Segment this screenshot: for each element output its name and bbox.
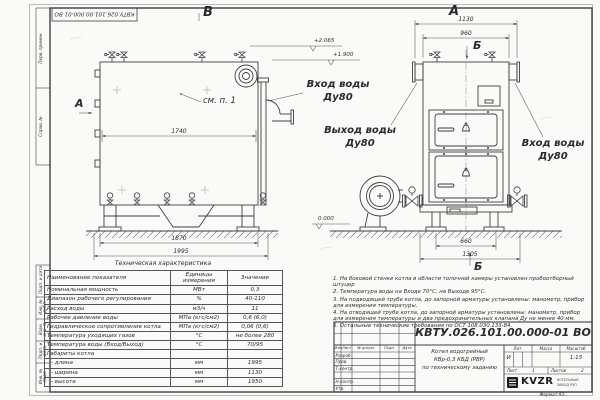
ground-hatch xyxy=(86,231,562,238)
inlet-valve xyxy=(508,187,528,207)
stamp-title-line2: КВр-0,3 КБД (РВР) xyxy=(434,358,485,363)
see-note-label: см. п. 1 xyxy=(203,97,236,106)
inlet-elbow xyxy=(266,100,280,114)
elevation-top: +2.065 xyxy=(314,39,334,45)
inlet-top-size: Ду80 xyxy=(323,93,352,103)
stamp-row-prov: Пров. xyxy=(336,360,348,364)
stamp-sheets-label: Листов xyxy=(551,369,566,373)
tech-table-title: Техническая характеристика xyxy=(115,261,211,267)
table-row: Температура уходящих газов°Сне более 280 xyxy=(45,331,283,340)
inlet-flange xyxy=(517,62,520,82)
strip-label-podp-data-1: Подп. и дата xyxy=(39,265,43,295)
stamp-col-date: Дата xyxy=(402,347,411,351)
chimney-flange xyxy=(243,73,250,80)
fan xyxy=(360,176,403,231)
top-designation: КВТУ.026.101.00.000-01 ВО xyxy=(54,10,135,16)
stamp-lit-value: И xyxy=(507,356,511,362)
strip-label-sprav: Справ. № xyxy=(39,90,43,163)
dim-1305: 1305 xyxy=(462,252,477,258)
kvzr-logo-sub1: КОТЕЛЬНЫЙ xyxy=(557,379,579,382)
tech-table: Наименование показателя Единицы измерени… xyxy=(44,270,283,387)
air-valve xyxy=(403,187,424,207)
dim-1870: 1870 xyxy=(171,236,186,242)
stamp-col-list: Лист xyxy=(342,347,351,351)
stamp-sheets-value: 2 xyxy=(581,369,584,373)
table-row: Рабочее давление водыМПа (кгс/см2)0,6 (6… xyxy=(45,313,283,322)
note-item: 2. Температура воды на Входе 70°С, на Вы… xyxy=(333,289,591,295)
kvzr-logo-text: KVZR xyxy=(521,377,553,387)
door-handle xyxy=(438,184,454,187)
elevation-mid: +1.900 xyxy=(333,53,353,59)
note-item: 1. На боковой стенке котла в области топ… xyxy=(333,276,591,288)
inlet-right-label: Вход воды xyxy=(522,139,585,149)
stamp-designation: КВТУ.026.101.00.000-01 ВО xyxy=(415,327,591,338)
table-row: Гидравлическое сопротивление котлаМПа (к… xyxy=(45,322,283,331)
stamp-col-doc: № докум. xyxy=(357,347,375,351)
stamp-row-utv: Утв. xyxy=(336,387,345,391)
stamp-row-tkontr: Т.контр. xyxy=(336,367,354,371)
section-a-label: А xyxy=(75,98,84,109)
dim-960: 960 xyxy=(460,31,471,37)
tech-col-unit: Единицы измерения xyxy=(171,271,228,286)
stamp-scale-value: 1:15 xyxy=(570,356,583,362)
boiler-front xyxy=(423,62,509,205)
table-row: - ширинамм1130 xyxy=(45,368,283,377)
stamp-mass-header: Масса xyxy=(540,347,553,351)
stamp-lit-header: Лит. xyxy=(513,347,522,351)
elevation-zero: 0.000 xyxy=(318,217,334,223)
inlet-top-label: Вход воды xyxy=(307,80,370,90)
kvzr-logo-icon xyxy=(507,377,518,388)
format-label: Формат А3 xyxy=(540,394,564,398)
section-b-bottom-label: Б xyxy=(474,261,482,272)
right-view xyxy=(360,50,527,234)
table-row: Габариты котла xyxy=(45,350,283,359)
tech-col-value: Значение xyxy=(228,271,283,286)
stamp-sheet-value: 1 xyxy=(532,369,535,373)
stamp-title-line1: Котел водогрейный xyxy=(431,350,488,355)
stamp-title-line3: по техническому заданию xyxy=(422,366,497,371)
view-label-v: В xyxy=(203,6,213,19)
table-row: Номинальная мощностьМВт0,3 xyxy=(45,286,283,295)
dim-1740: 1740 xyxy=(171,129,186,135)
dim-1130: 1130 xyxy=(458,17,473,23)
left-view xyxy=(95,52,294,231)
drawing-sheet: КВТУ.026.101.00.000-01 ВО Перв. примен. … xyxy=(0,0,600,400)
outlet-label: Выход воды xyxy=(324,126,396,136)
stamp-row-razrab: Разраб. xyxy=(336,354,352,358)
dim-660: 660 xyxy=(460,239,471,245)
stamp-scale-header: Масштаб xyxy=(566,347,585,351)
table-row: - высотамм1950 xyxy=(45,377,283,386)
stamp-col-sign: Подп. xyxy=(384,347,395,351)
dim-1995: 1995 xyxy=(173,249,188,255)
outlet-flange xyxy=(413,62,416,82)
strip-label-perv-primen: Перв. примен. xyxy=(39,10,43,86)
notes-block: 1. На боковой стенке котла в области топ… xyxy=(333,276,591,331)
kvzr-logo-sub2: ЗАВОД РЭП xyxy=(557,384,577,387)
stamp-sheet-label: Лист xyxy=(507,369,517,373)
stamp-row-nkontr: Н.контр. xyxy=(336,380,355,384)
tech-col-name: Наименование показателя xyxy=(45,271,171,286)
table-row: - длинамм1995 xyxy=(45,359,283,368)
section-b-top-label: Б xyxy=(473,40,481,51)
note-item: 4. На отводящей трубе котла, до запорной… xyxy=(333,310,591,322)
table-row: Диапазон рабочего регулирования%40-110 xyxy=(45,295,283,304)
table-row: Температура воды (Вход/Выход)°С70/95 xyxy=(45,341,283,350)
door-handle xyxy=(438,128,454,131)
note-item: 3. На подводящей трубе котла, до запорно… xyxy=(333,297,591,309)
inlet-right-size: Ду80 xyxy=(538,152,567,162)
table-row: Расход водым3/ч11 xyxy=(45,304,283,313)
outlet-size: Ду80 xyxy=(345,139,374,149)
